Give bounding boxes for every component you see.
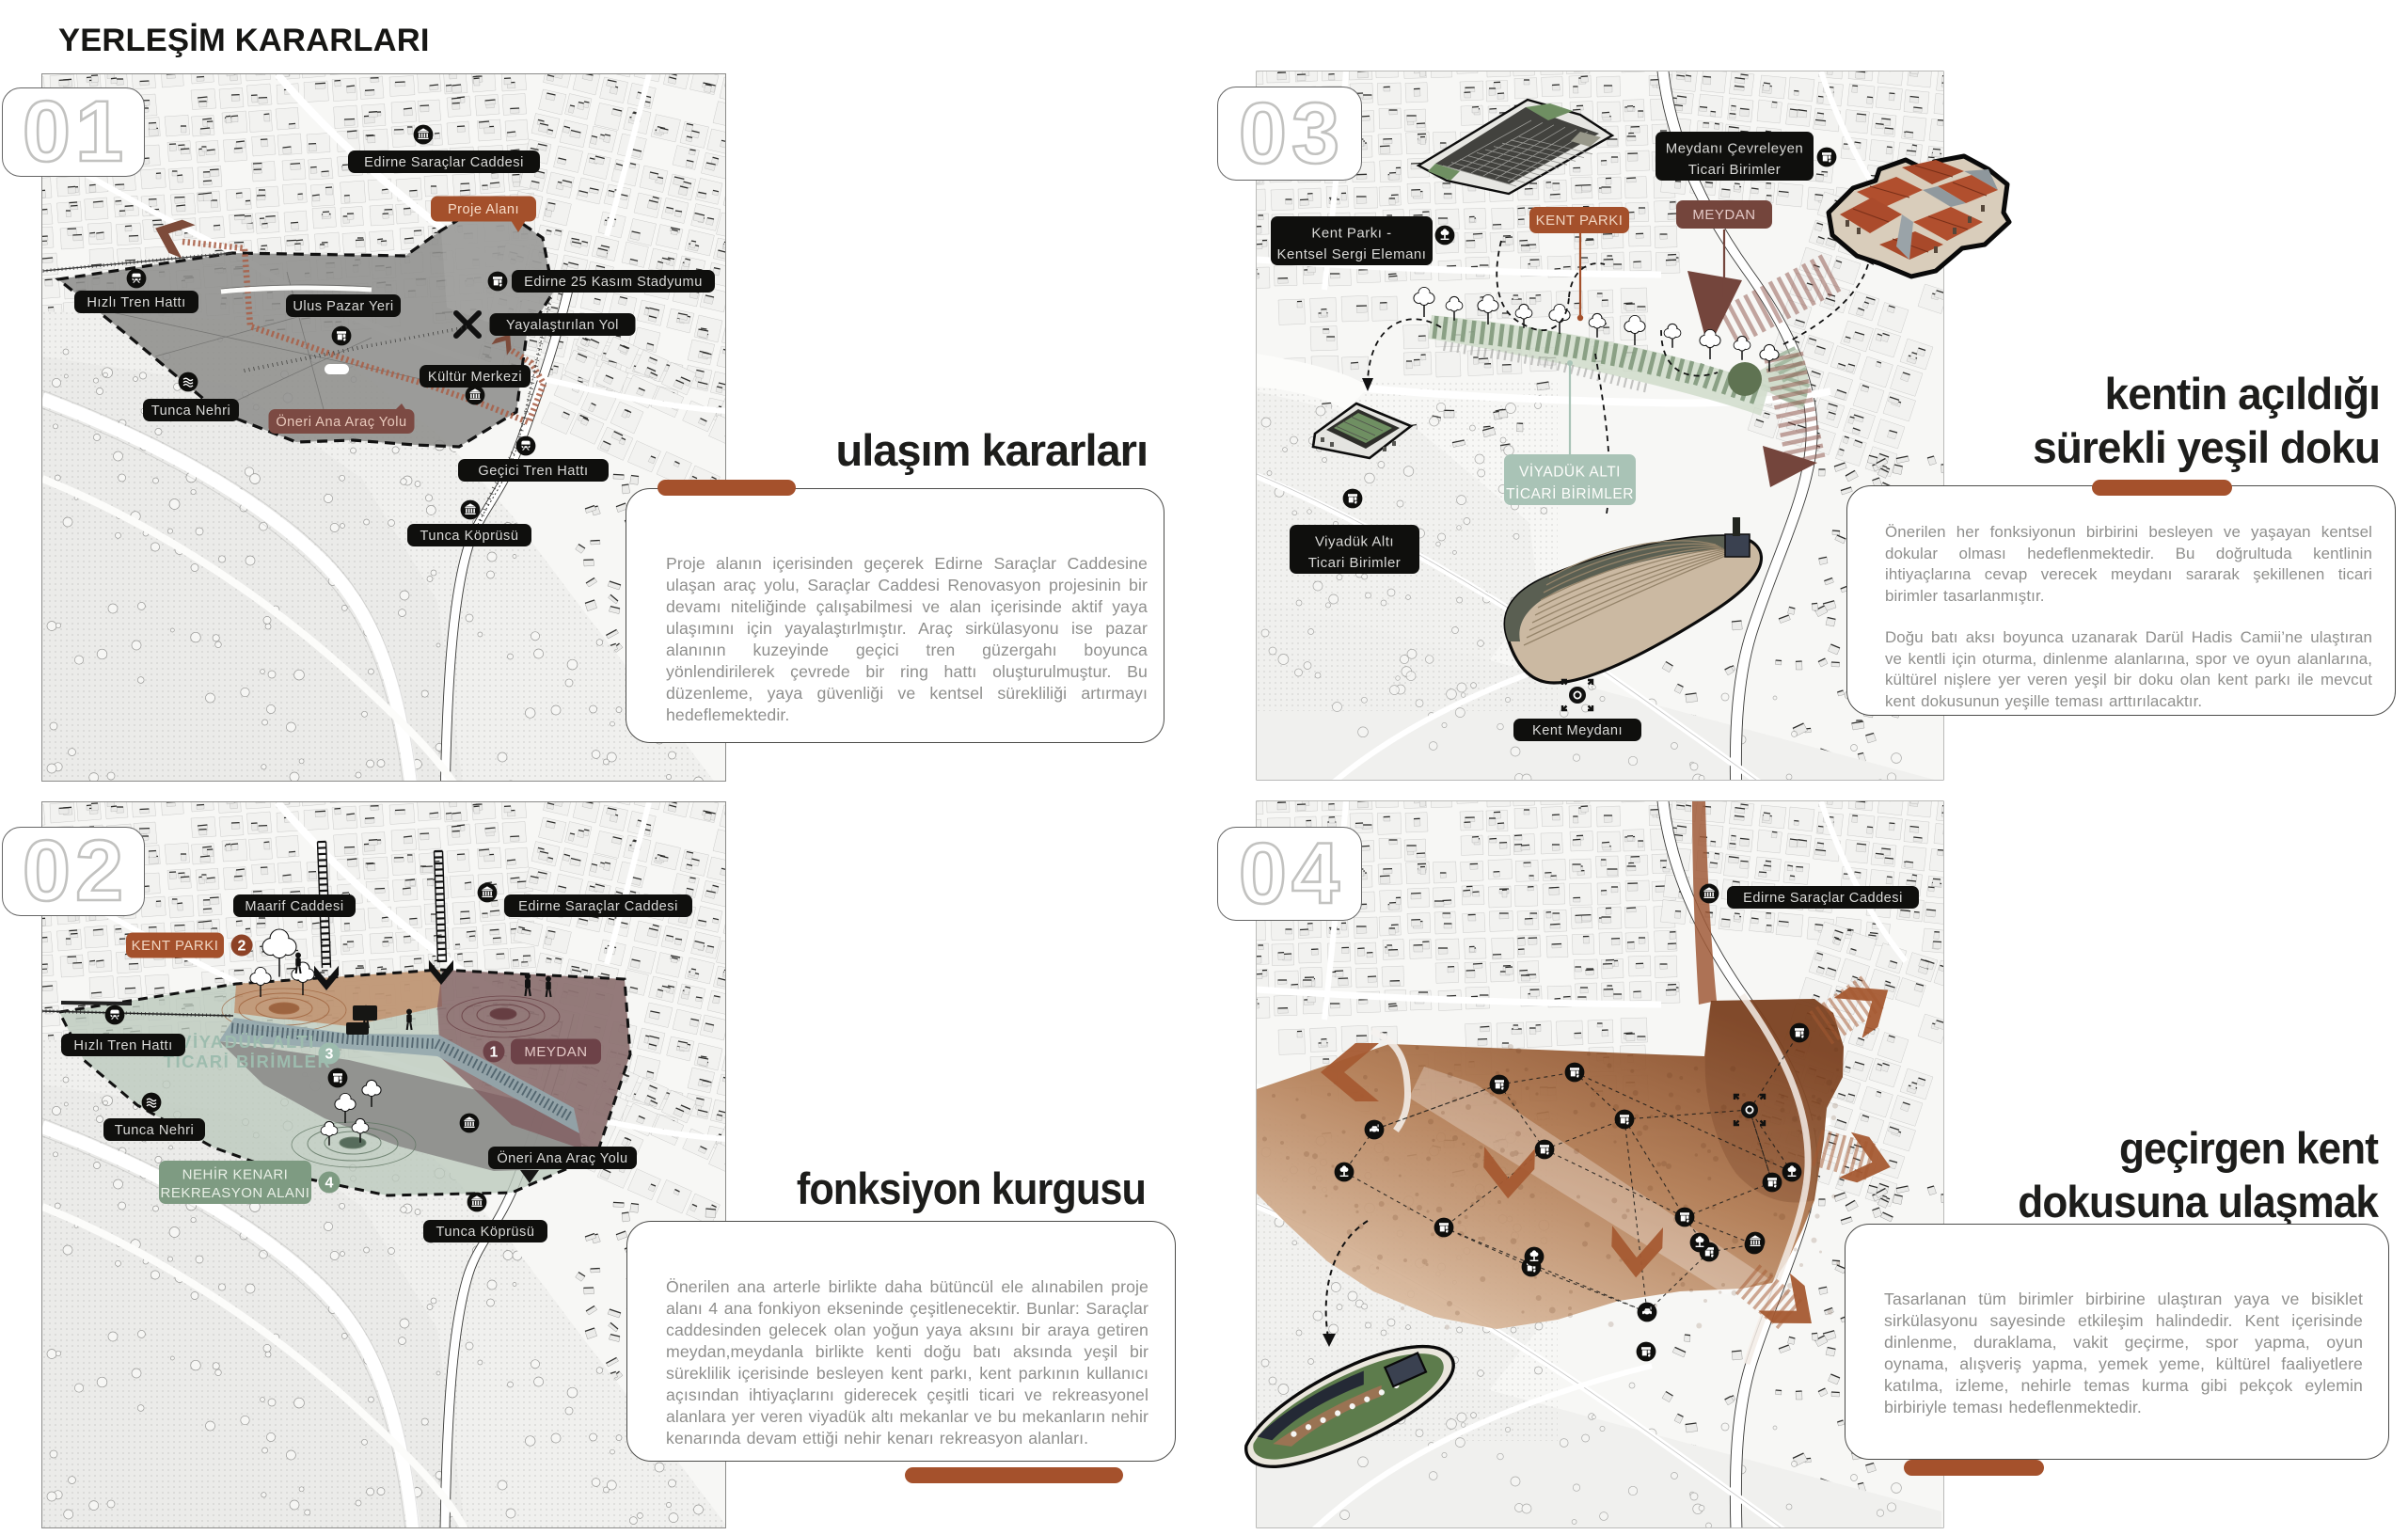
svg-text:Viyadük Altı: Viyadük Altı: [1315, 534, 1394, 550]
svg-text:Kent Meydanı: Kent Meydanı: [1532, 723, 1623, 738]
svg-text:Edirne Saraçlar Caddesi: Edirne Saraçlar Caddesi: [1743, 891, 1903, 906]
svg-text:Öneri Ana Araç Yolu: Öneri Ana Araç Yolu: [497, 1149, 627, 1166]
svg-text:Edirne Saraçlar Caddesi: Edirne Saraçlar Caddesi: [518, 899, 678, 914]
svg-text:Proje Alanı: Proje Alanı: [448, 202, 519, 217]
svg-text:2: 2: [238, 939, 246, 955]
svg-text:Edirne Saraçlar Caddesi: Edirne Saraçlar Caddesi: [364, 155, 524, 170]
svg-text:Maarif Caddesi: Maarif Caddesi: [245, 899, 343, 914]
svg-text:Hızlı Tren Hattı: Hızlı Tren Hattı: [73, 1038, 172, 1053]
svg-text:VİYADÜK ALTI: VİYADÜK ALTI: [1519, 464, 1621, 481]
svg-text:Meydanı Çevreleyen: Meydanı Çevreleyen: [1666, 141, 1804, 157]
svg-text:4: 4: [325, 1176, 334, 1192]
svg-text:Tunca Nehri: Tunca Nehri: [115, 1123, 194, 1138]
svg-text:Ticari Birimler: Ticari Birimler: [1688, 162, 1782, 178]
svg-text:Tunca Köprüsü: Tunca Köprüsü: [420, 529, 519, 544]
svg-text:Kent Parkı -: Kent Parkı -: [1311, 226, 1391, 242]
svg-text:Edirne 25 Kasım Stadyumu: Edirne 25 Kasım Stadyumu: [524, 275, 703, 290]
svg-text:Tunca Nehri: Tunca Nehri: [151, 404, 230, 419]
svg-text:VİYADÜK ALTI: VİYADÜK ALTI: [180, 1032, 315, 1052]
svg-text:KENT PARKI: KENT PARKI: [1536, 213, 1624, 229]
svg-text:Kentsel Sergi Elemanı: Kentsel Sergi Elemanı: [1277, 246, 1427, 262]
svg-text:Öneri Ana Araç Yolu: Öneri Ana Araç Yolu: [276, 413, 406, 430]
svg-text:REKREASYON ALANI: REKREASYON ALANI: [161, 1185, 310, 1201]
svg-text:Yayalaştırılan Yol: Yayalaştırılan Yol: [506, 318, 619, 333]
svg-text:Tunca Köprüsü: Tunca Köprüsü: [436, 1225, 535, 1240]
svg-text:MEYDAN: MEYDAN: [524, 1044, 587, 1060]
svg-text:Ticari Birimler: Ticari Birimler: [1308, 555, 1402, 571]
svg-text:TİCARİ BİRİMLER: TİCARİ BİRİMLER: [1506, 485, 1634, 502]
svg-text:3: 3: [325, 1047, 334, 1063]
svg-text:KENT PARKI: KENT PARKI: [132, 938, 219, 954]
svg-text:Ulus Pazar Yeri: Ulus Pazar Yeri: [293, 299, 393, 314]
svg-text:TİCARİ BİRİMLER: TİCARİ BİRİMLER: [164, 1052, 332, 1071]
svg-text:NEHİR KENARI: NEHİR KENARI: [182, 1166, 289, 1183]
svg-text:Geçici Tren Hattı: Geçici Tren Hattı: [478, 464, 588, 479]
svg-text:1: 1: [490, 1045, 499, 1061]
svg-text:MEYDAN: MEYDAN: [1692, 207, 1755, 223]
svg-text:Kültür Merkezi: Kültür Merkezi: [428, 370, 522, 385]
svg-text:Hızlı Tren Hattı: Hızlı Tren Hattı: [87, 295, 185, 310]
